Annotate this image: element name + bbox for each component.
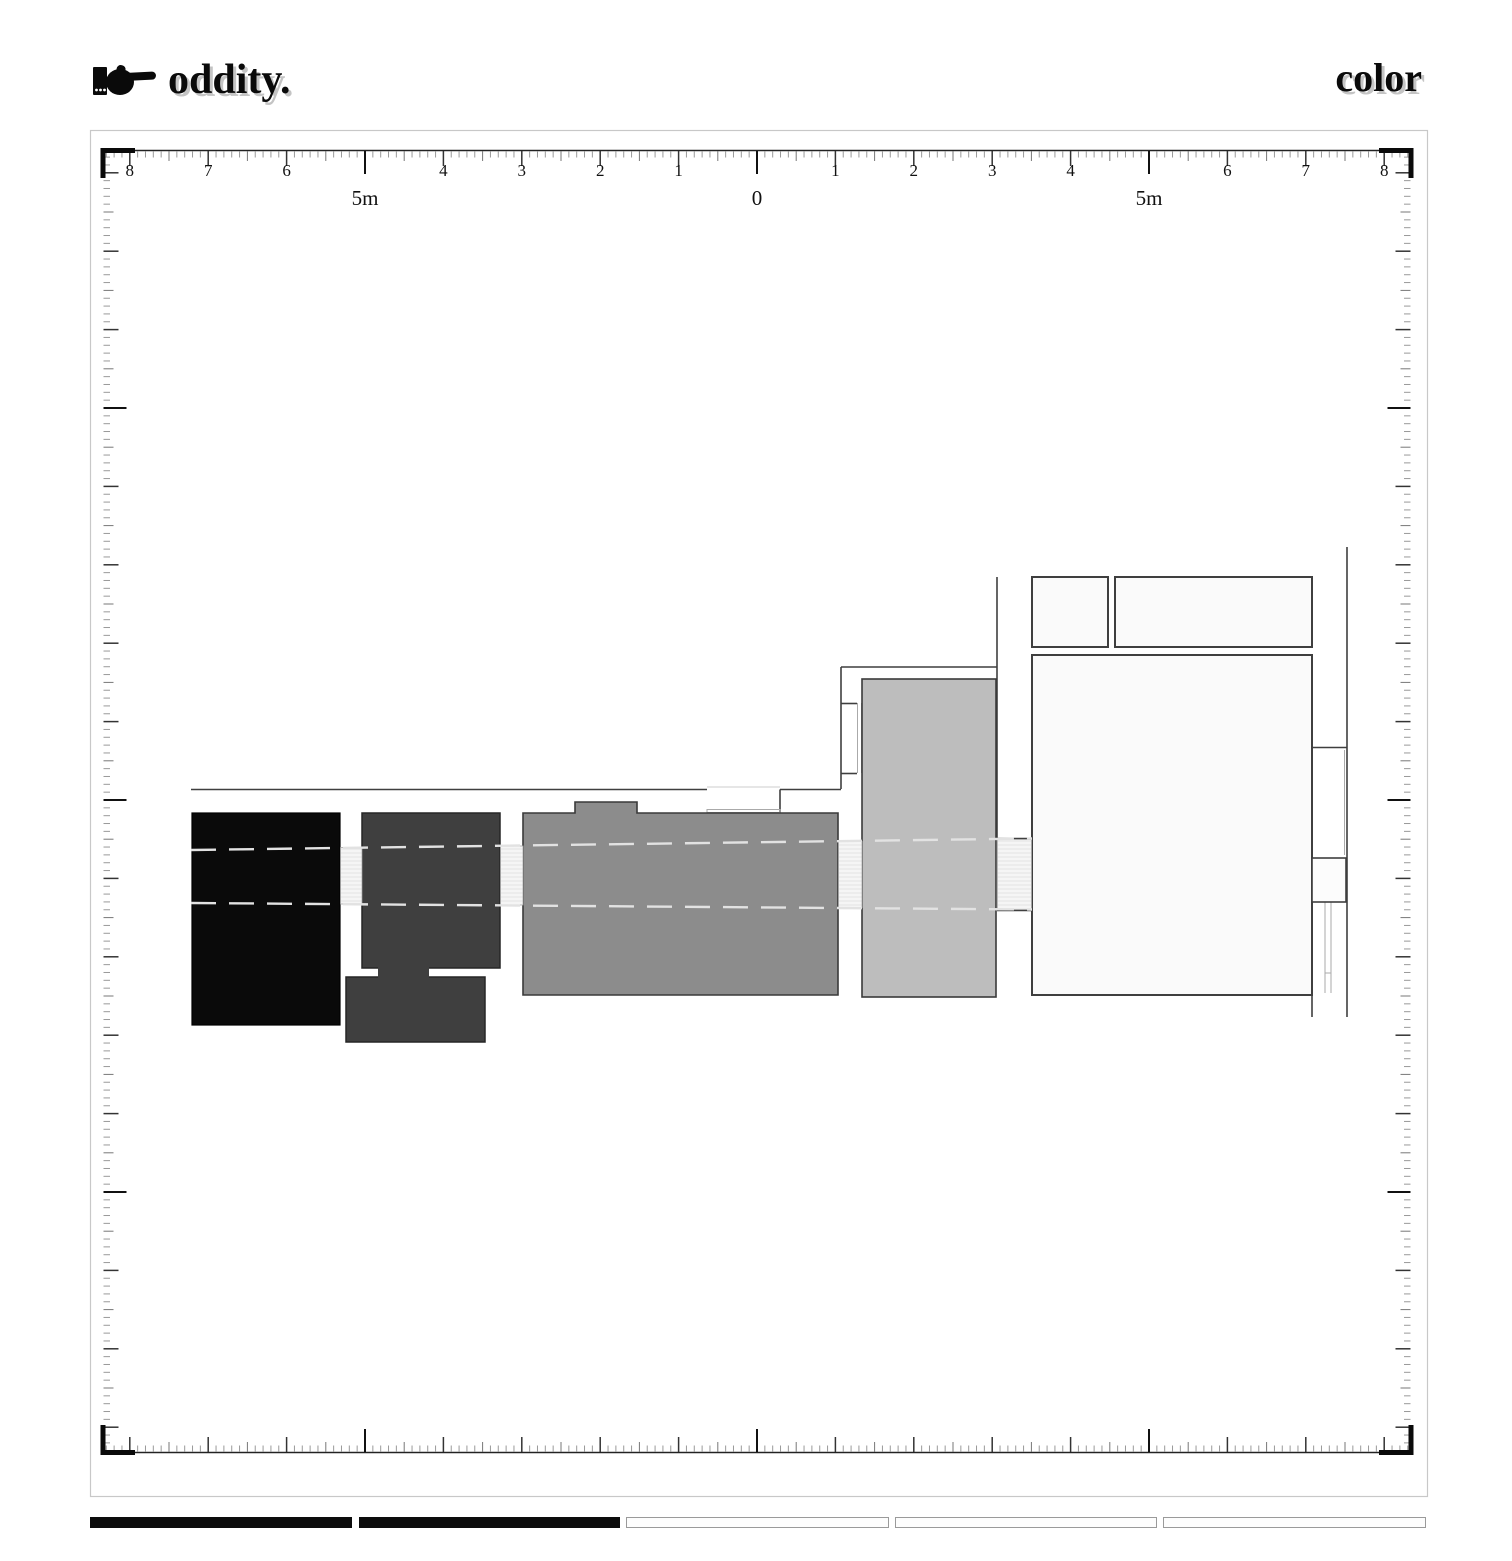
block-dark-upper [362, 813, 500, 968]
svg-text:5m: 5m [352, 186, 379, 210]
svg-text:5m: 5m [1136, 186, 1163, 210]
svg-text:0: 0 [752, 186, 763, 210]
svg-text:2: 2 [596, 161, 605, 180]
svg-text:4: 4 [439, 161, 448, 180]
passage-1 [341, 848, 363, 905]
calibration-segment-3 [627, 1518, 889, 1528]
room-small-top [1032, 577, 1108, 647]
drawing-sheet: 887766443322115m05m [0, 0, 1512, 1561]
svg-text:7: 7 [1302, 161, 1311, 180]
svg-text:1: 1 [674, 161, 683, 180]
passage-3 [839, 842, 863, 908]
calibration-segment-1 [90, 1517, 352, 1528]
door-recess [1312, 858, 1346, 902]
block-dark-connector [378, 960, 429, 982]
svg-text:4: 4 [1066, 161, 1075, 180]
svg-text:6: 6 [282, 161, 291, 180]
block-dark-lower [346, 977, 485, 1042]
svg-text:6: 6 [1223, 161, 1232, 180]
svg-text:3: 3 [988, 161, 997, 180]
svg-text:7: 7 [204, 161, 213, 180]
calibration-strip [90, 1517, 1426, 1528]
calibration-segment-5 [1164, 1518, 1426, 1528]
svg-text:1: 1 [831, 161, 840, 180]
svg-text:2: 2 [910, 161, 919, 180]
floor-plan [191, 547, 1347, 1042]
svg-text:8: 8 [126, 161, 135, 180]
block-mid-gray [523, 802, 838, 995]
svg-text:3: 3 [518, 161, 527, 180]
calibration-segment-4 [896, 1518, 1157, 1528]
page: oddity. color 887766443322115m05m [0, 0, 1512, 1561]
svg-text:8: 8 [1380, 161, 1389, 180]
calibration-segment-2 [359, 1517, 620, 1528]
room-large [1032, 655, 1312, 995]
block-black [192, 813, 340, 1025]
block-light-gray [862, 679, 996, 997]
room-wide-top [1115, 577, 1312, 647]
passage-4 [998, 840, 1032, 910]
passage-2 [501, 846, 524, 905]
